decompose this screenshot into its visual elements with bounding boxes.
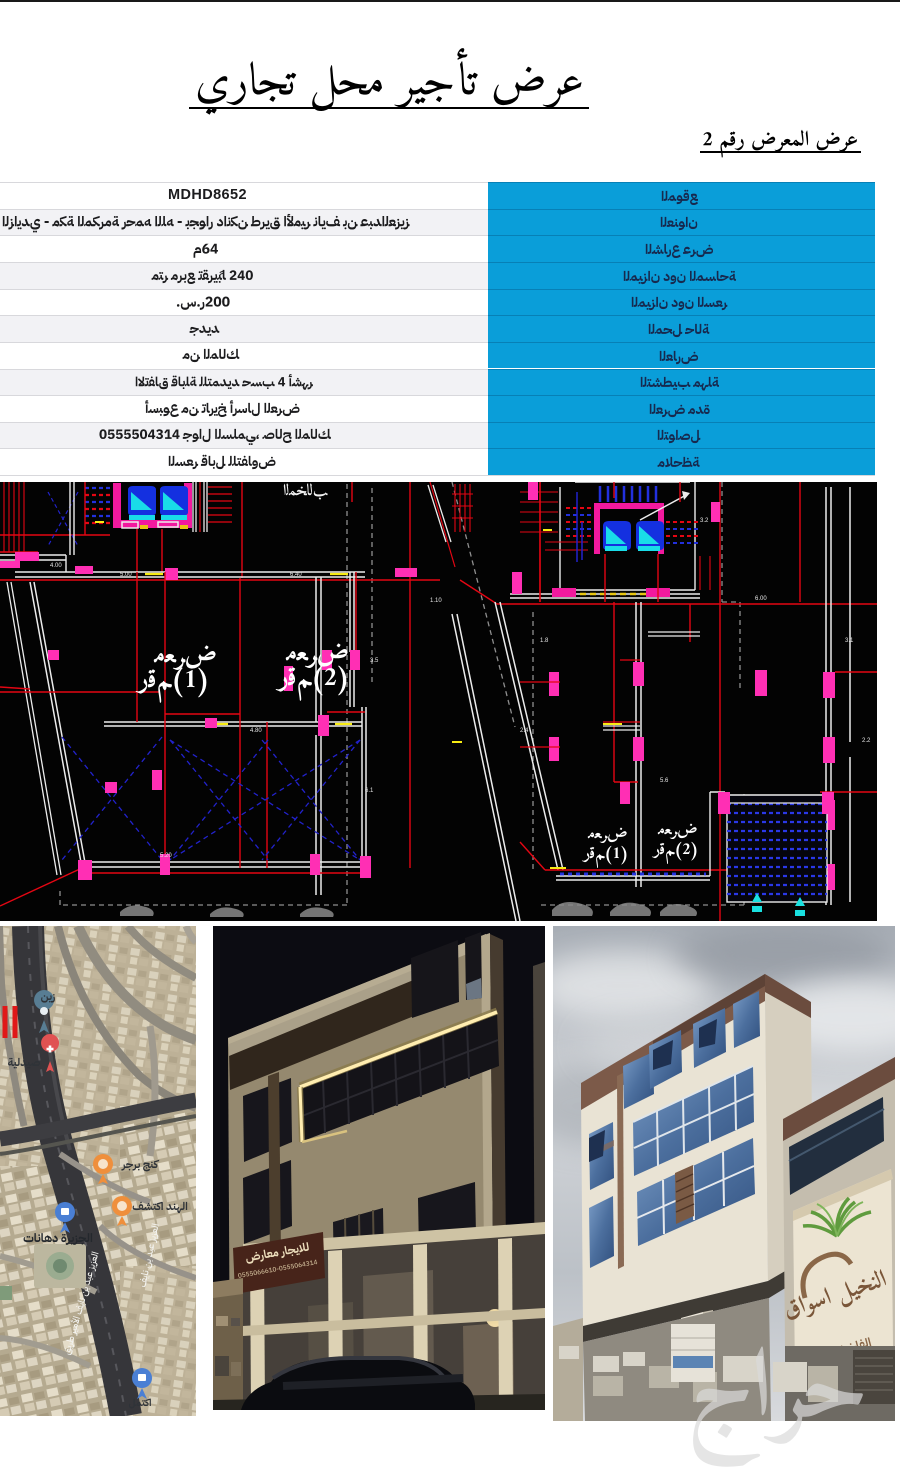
svg-text:1.8: 1.8 <box>540 638 549 644</box>
svg-text:2.2: 2.2 <box>862 738 871 744</box>
svg-text:6.1: 6.1 <box>365 788 374 794</box>
svg-text:3.2: 3.2 <box>700 518 709 524</box>
svg-text:6.00: 6.00 <box>755 596 767 602</box>
svg-text:3.5: 3.5 <box>370 658 379 664</box>
svg-text:4.00: 4.00 <box>50 563 62 569</box>
svg-text:5.00: 5.00 <box>120 572 132 578</box>
svg-text:1.10: 1.10 <box>430 598 442 604</box>
svg-text:6.40: 6.40 <box>290 572 302 578</box>
svg-text:5.6: 5.6 <box>660 778 669 784</box>
svg-text:5.20: 5.20 <box>160 853 172 859</box>
svg-text:4.80: 4.80 <box>250 728 262 734</box>
svg-text:3.1: 3.1 <box>845 638 854 644</box>
svg-text:2.4: 2.4 <box>520 728 529 734</box>
